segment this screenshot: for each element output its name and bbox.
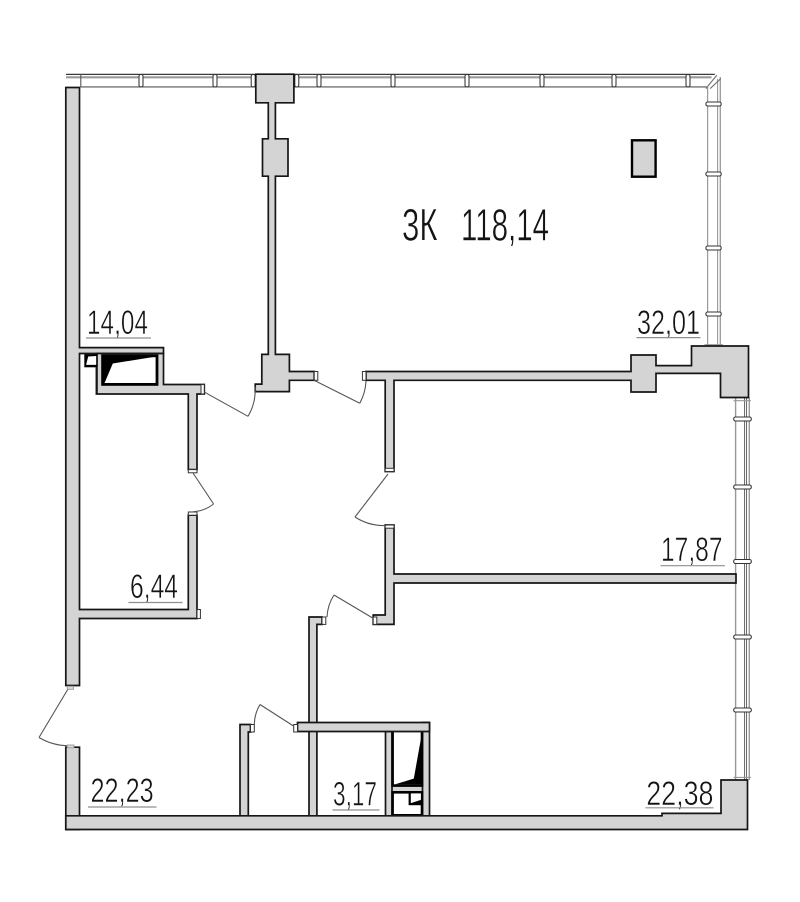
svg-text:3,17: 3,17 bbox=[333, 776, 377, 814]
svg-text:32,01: 32,01 bbox=[637, 304, 700, 342]
svg-text:3К: 3К bbox=[402, 200, 438, 251]
svg-text:6,44: 6,44 bbox=[130, 568, 178, 606]
svg-text:17,87: 17,87 bbox=[661, 531, 723, 569]
svg-text:14,04: 14,04 bbox=[87, 304, 148, 342]
svg-text:22,23: 22,23 bbox=[91, 772, 154, 810]
svg-text:118,14: 118,14 bbox=[461, 200, 549, 251]
